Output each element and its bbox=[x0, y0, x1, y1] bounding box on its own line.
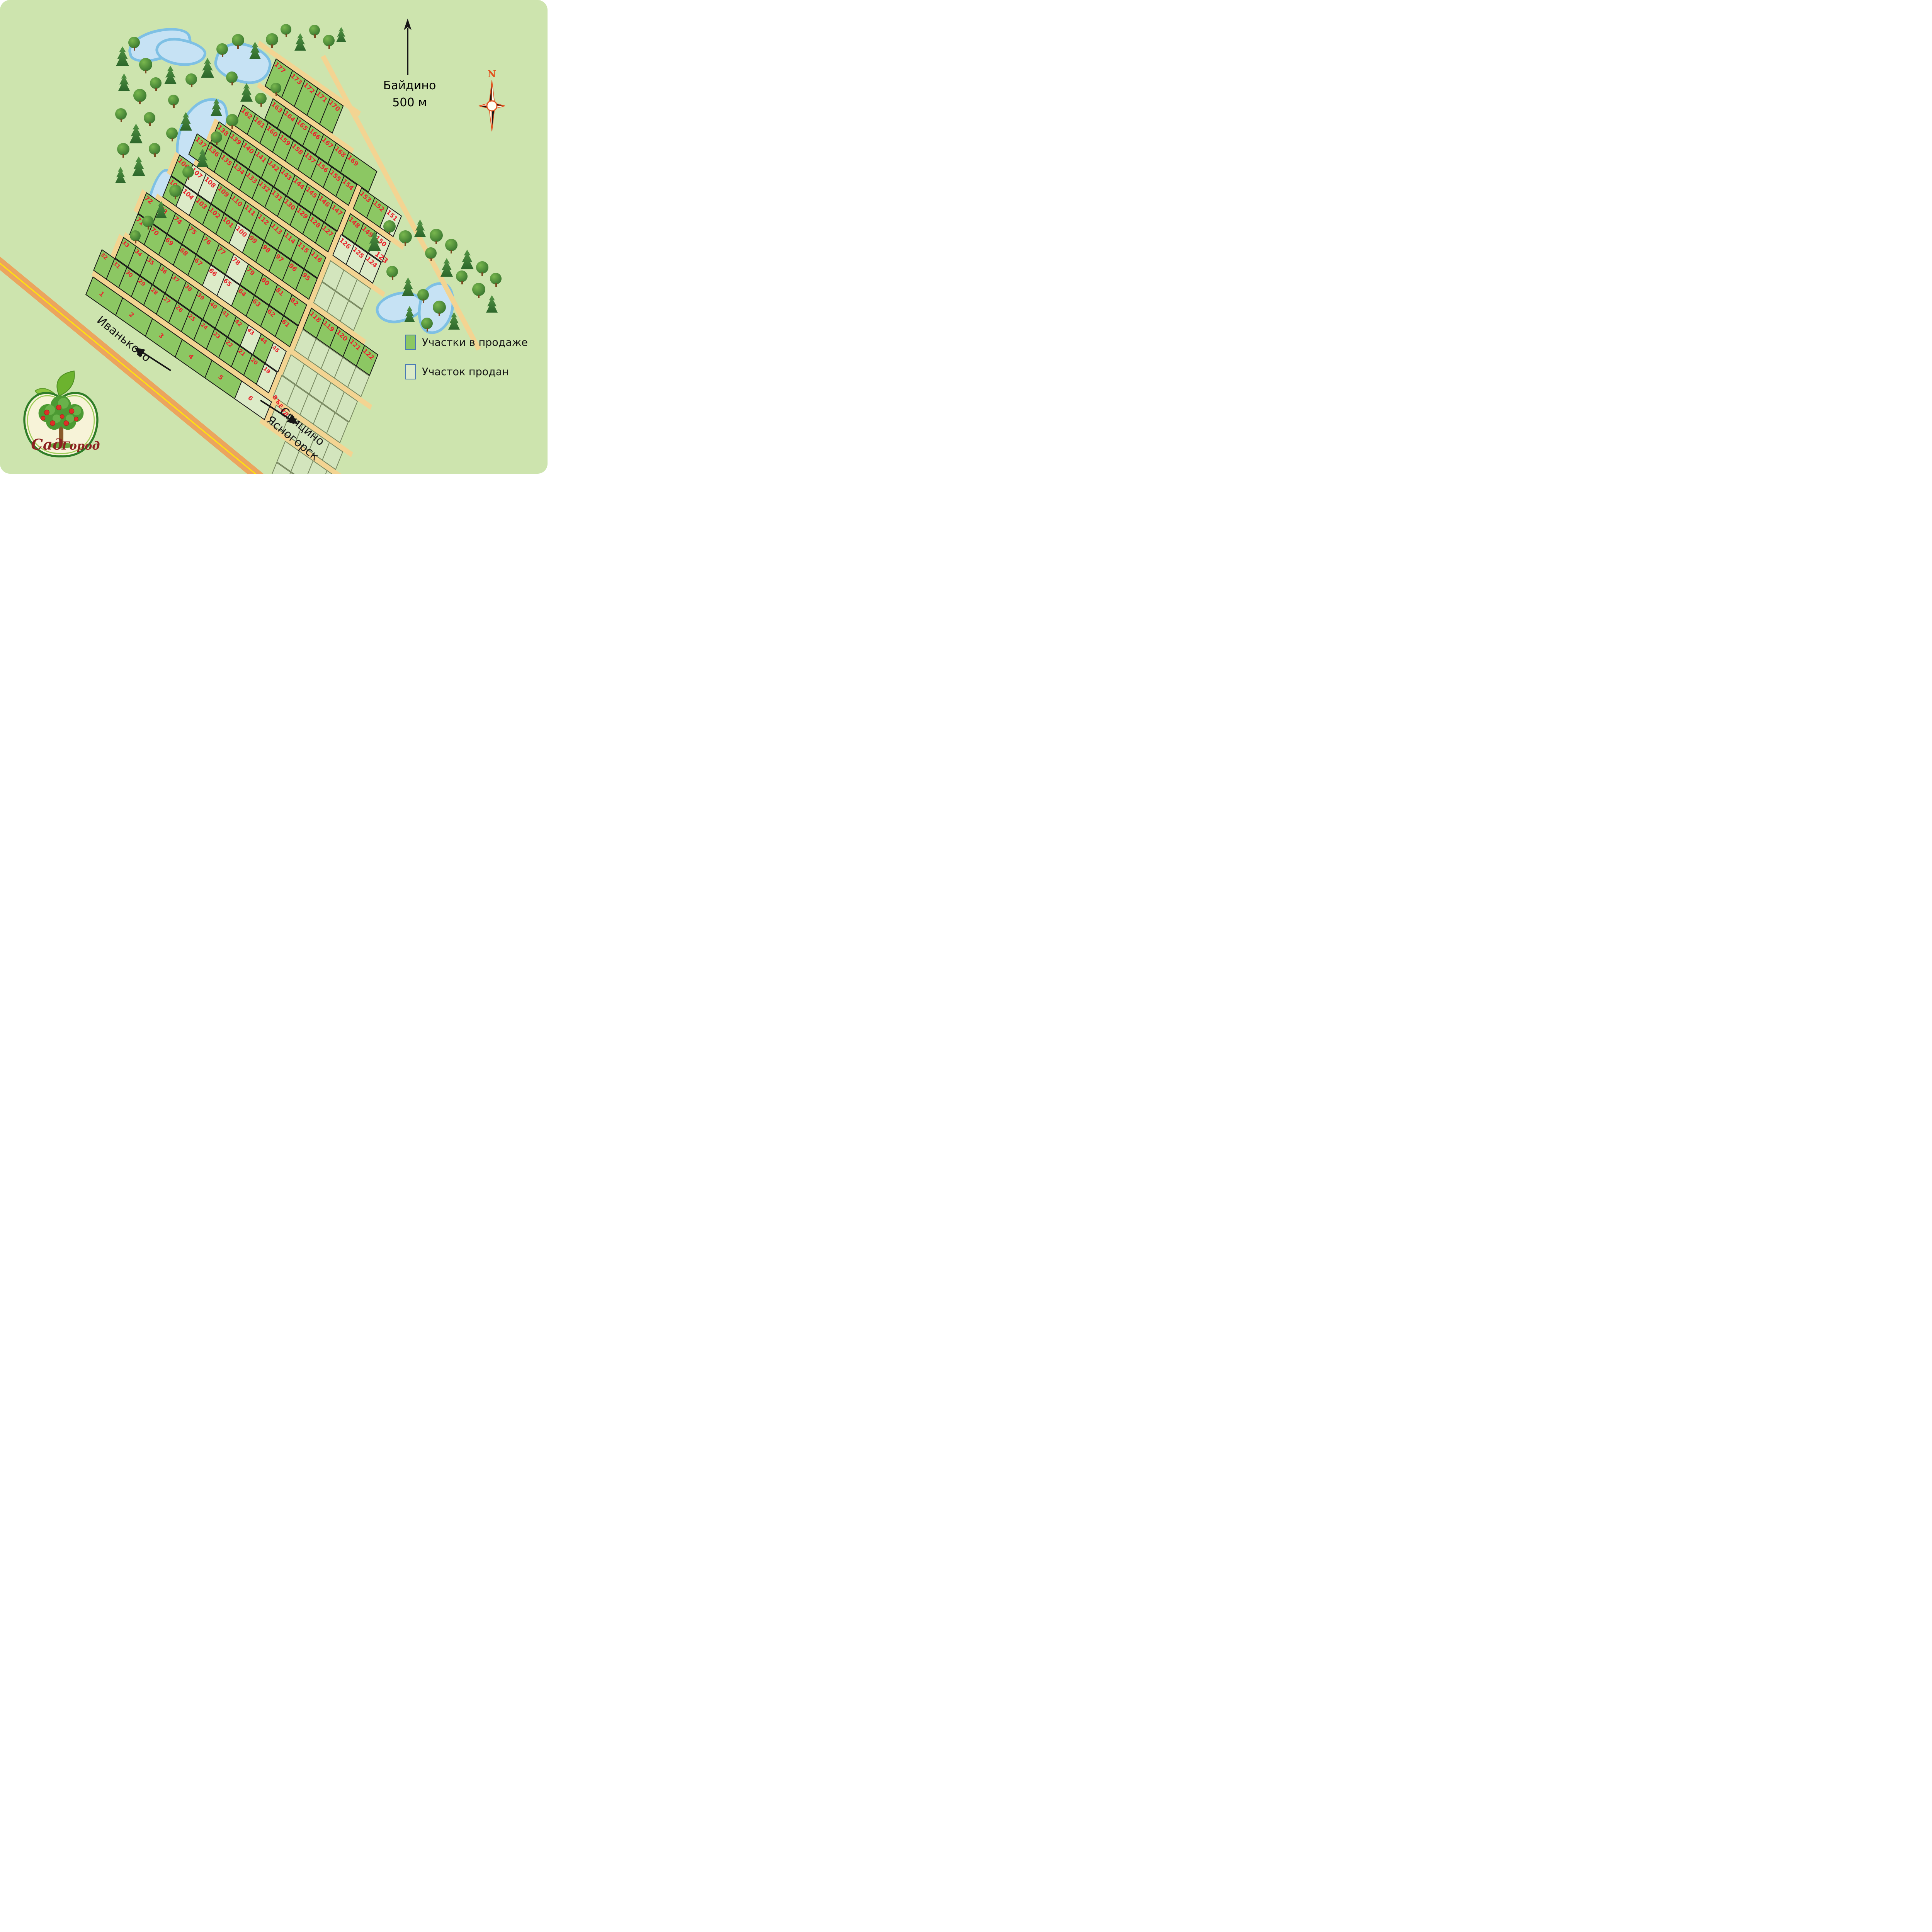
plot-number: 38 bbox=[184, 284, 193, 293]
legend-label-for-sale: Участки в продаже bbox=[422, 337, 528, 349]
plot-map-illustration: 1771731721711701631641651661671681691621… bbox=[0, 0, 548, 480]
pine-tree-icon bbox=[132, 156, 145, 176]
plot-number: 41 bbox=[221, 310, 230, 319]
pine-tree-icon bbox=[294, 33, 306, 51]
pine-tree-icon bbox=[486, 295, 498, 313]
tree-icon bbox=[169, 185, 182, 197]
tree-icon bbox=[386, 266, 398, 277]
destination-distance: 500 м bbox=[377, 94, 442, 111]
plot-number: 80 bbox=[260, 277, 270, 287]
compass-icon: N bbox=[478, 69, 506, 134]
plot-number: 24 bbox=[199, 322, 209, 331]
tree-icon bbox=[425, 247, 437, 259]
plot-number: 34 bbox=[134, 248, 143, 258]
tree-icon bbox=[226, 114, 238, 126]
direction-arrow-icon bbox=[258, 397, 301, 431]
plot-number: 82 bbox=[289, 297, 299, 307]
plot-number: 25 bbox=[187, 313, 196, 323]
plot-number: 153 bbox=[359, 190, 372, 203]
plot-number: 79 bbox=[245, 266, 256, 277]
plot-number: 78 bbox=[231, 256, 241, 267]
tree-icon bbox=[149, 143, 160, 155]
plot-number: 33 bbox=[121, 240, 130, 249]
plot-number: 43 bbox=[246, 327, 255, 337]
compass-north-label: N bbox=[488, 69, 496, 80]
plot-number: 28 bbox=[150, 287, 159, 296]
plot-number: 77 bbox=[216, 246, 227, 256]
tree-icon bbox=[211, 131, 222, 143]
logo-word-right: Город bbox=[61, 439, 100, 452]
map-background: 1771731721711701631641651661671681691621… bbox=[0, 0, 548, 474]
plot-number: 75 bbox=[187, 226, 197, 236]
plot-number: 169 bbox=[346, 154, 359, 167]
plot-number: 27 bbox=[162, 296, 171, 305]
tree-icon bbox=[421, 318, 433, 329]
legend: Участки в продаже Участок продан bbox=[405, 335, 528, 393]
plot-number: 32 bbox=[99, 252, 109, 261]
pine-tree-icon bbox=[461, 250, 474, 269]
plot-number: 98 bbox=[261, 244, 271, 254]
plot-number: 4 bbox=[187, 353, 195, 360]
tree-icon bbox=[266, 33, 278, 46]
tree-icon bbox=[383, 220, 396, 233]
plot-number: 72 bbox=[143, 195, 154, 205]
plot-number: 96 bbox=[287, 262, 298, 273]
plot-number: 21 bbox=[237, 348, 246, 357]
plot-number: 99 bbox=[248, 235, 258, 245]
plot-number: 162 bbox=[240, 107, 253, 120]
tree-icon bbox=[128, 37, 140, 48]
plot-number: 81 bbox=[274, 287, 285, 297]
destination-label: Байдино 500 м bbox=[377, 77, 442, 111]
tree-icon bbox=[139, 58, 152, 71]
direction-arrow-icon bbox=[131, 345, 174, 374]
plot-number: 30 bbox=[124, 269, 134, 279]
legend-item-for-sale: Участки в продаже bbox=[405, 335, 528, 350]
pine-tree-icon bbox=[336, 27, 346, 42]
plot-number: 42 bbox=[233, 318, 243, 328]
plot-number: 64 bbox=[237, 287, 247, 298]
tree-icon bbox=[433, 301, 446, 314]
plot-number: 36 bbox=[158, 266, 168, 275]
plot-number: 22 bbox=[224, 340, 234, 349]
tree-icon bbox=[115, 108, 127, 120]
tree-icon bbox=[445, 239, 457, 251]
plot-number: 70 bbox=[150, 226, 160, 237]
plot-number: 161 bbox=[252, 116, 266, 129]
plot-number: 66 bbox=[207, 267, 218, 278]
tree-icon bbox=[323, 35, 335, 46]
plot-number: 29 bbox=[137, 278, 146, 287]
plot-number: 67 bbox=[193, 257, 204, 267]
plot-number: 2 bbox=[128, 311, 135, 318]
pine-tree-icon bbox=[164, 66, 177, 84]
plot-number: 152 bbox=[372, 200, 385, 213]
tree-icon bbox=[182, 166, 194, 178]
tree-icon bbox=[399, 230, 412, 243]
plot-number: 31 bbox=[112, 261, 121, 270]
plot-number: 61 bbox=[281, 318, 291, 328]
tree-icon bbox=[309, 25, 320, 36]
pine-tree-icon bbox=[440, 258, 453, 277]
plot-number: 23 bbox=[212, 331, 221, 340]
plot-number: 44 bbox=[259, 336, 268, 345]
tree-icon bbox=[490, 273, 502, 284]
destination-name: Байдино bbox=[377, 77, 442, 94]
legend-swatch-for-sale bbox=[405, 335, 416, 350]
plot-number: 20 bbox=[250, 357, 259, 366]
plot-number: 69 bbox=[164, 236, 174, 247]
plot-number: 5 bbox=[217, 374, 224, 381]
direction-arrow-icon bbox=[403, 19, 412, 78]
plot-number: 37 bbox=[171, 275, 180, 284]
tree-icon bbox=[142, 216, 154, 227]
pine-tree-icon bbox=[115, 167, 126, 183]
plot-number: 35 bbox=[146, 257, 155, 267]
plot-number: 63 bbox=[251, 298, 262, 308]
plot-number: 95 bbox=[301, 272, 311, 282]
plot-number: 76 bbox=[202, 236, 212, 246]
tree-icon bbox=[144, 112, 155, 124]
plot-number: 97 bbox=[274, 253, 285, 264]
plot-number: 19 bbox=[262, 366, 271, 375]
legend-swatch-sold bbox=[405, 364, 416, 379]
plot-number: 39 bbox=[196, 292, 205, 301]
pine-tree-icon bbox=[129, 124, 143, 143]
legend-label-sold: Участок продан bbox=[422, 366, 509, 378]
tree-icon bbox=[417, 289, 429, 301]
tree-icon bbox=[168, 95, 179, 105]
tree-icon bbox=[117, 143, 129, 155]
plot-number: 122 bbox=[362, 348, 375, 361]
logo-word-left: Сад bbox=[31, 436, 63, 454]
plot-number: 74 bbox=[173, 215, 183, 226]
tree-icon bbox=[255, 93, 267, 104]
legend-item-sold: Участок продан bbox=[405, 364, 528, 379]
plot-number: 45 bbox=[271, 345, 280, 354]
plot-number: 26 bbox=[174, 304, 184, 314]
tree-icon bbox=[185, 73, 197, 85]
plot-number: 6 bbox=[247, 395, 254, 402]
pine-tree-icon bbox=[240, 83, 253, 102]
tree-icon bbox=[456, 270, 468, 282]
plot-number: 40 bbox=[209, 301, 218, 310]
plot-number: 62 bbox=[266, 308, 276, 318]
tree-icon bbox=[232, 34, 244, 46]
tree-icon bbox=[430, 229, 443, 242]
tree-icon bbox=[281, 24, 291, 35]
tree-icon bbox=[270, 83, 281, 94]
plot-number: 65 bbox=[222, 277, 233, 288]
pine-tree-icon bbox=[118, 73, 130, 91]
tree-icon bbox=[472, 283, 485, 296]
tree-icon bbox=[150, 77, 162, 89]
tree-icon bbox=[216, 43, 228, 55]
plot-number: 68 bbox=[179, 247, 189, 257]
tree-icon bbox=[130, 230, 141, 241]
plot-number: 1 bbox=[98, 290, 105, 298]
pine-tree-icon bbox=[402, 277, 414, 296]
tree-icon bbox=[226, 71, 238, 83]
plot-number: 3 bbox=[158, 332, 165, 339]
pine-tree-icon bbox=[201, 58, 214, 78]
pine-tree-icon bbox=[116, 46, 129, 66]
sad-gorod-logo: Сад Город bbox=[19, 370, 102, 464]
tree-icon bbox=[133, 89, 146, 102]
tree-icon bbox=[476, 261, 488, 274]
tree-icon bbox=[166, 128, 178, 139]
